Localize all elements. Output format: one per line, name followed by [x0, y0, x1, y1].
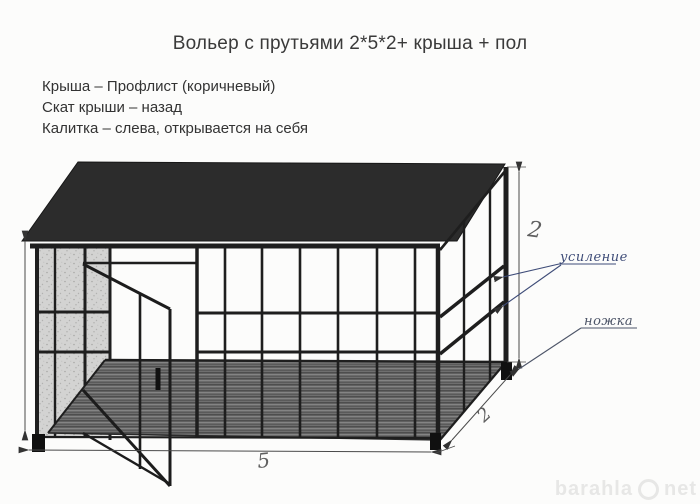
watermark-circle-icon	[638, 479, 659, 500]
enclosure-diagram: 2 5 2 усиление ножка	[0, 0, 700, 504]
dim-label-depth: 2	[472, 403, 495, 427]
front-left-leg	[32, 434, 45, 452]
front-right-leg	[430, 433, 441, 450]
dim-label-height: 2	[525, 217, 543, 244]
reinforcement-annotation: усиление	[559, 250, 628, 265]
roof-panel	[22, 162, 505, 241]
scanned-drawing-page: Вольер с прутьями 2*5*2+ крыша + пол Кры…	[0, 0, 700, 504]
watermark-left: barahla	[555, 478, 633, 501]
dim-label-width: 5	[256, 448, 271, 473]
dim-bottom-width	[29, 450, 431, 452]
leg-annotation: ножка	[584, 314, 633, 329]
watermark-right: net	[664, 478, 697, 501]
watermark: barahla net	[555, 478, 697, 501]
back-right-leg	[501, 362, 512, 380]
front-bottom-rail	[44, 437, 441, 438]
